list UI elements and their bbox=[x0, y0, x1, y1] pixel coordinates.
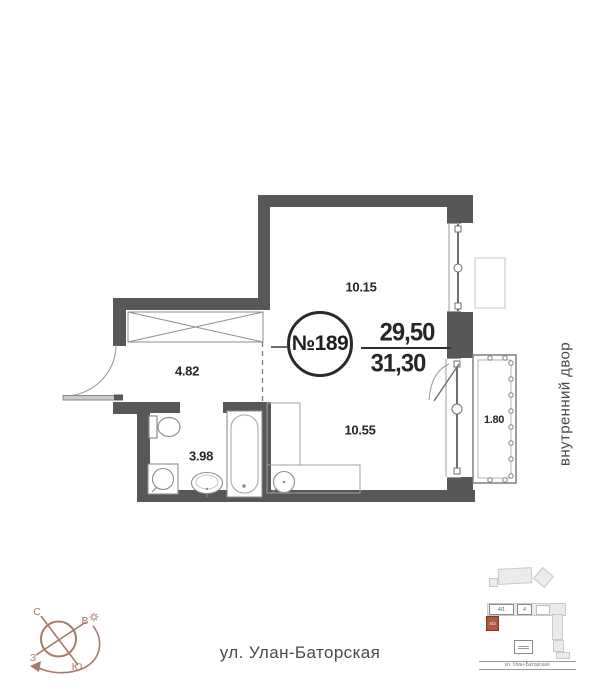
bathroom-sink bbox=[192, 473, 223, 498]
mini-map-street-label: ул. Улан-Баторская bbox=[504, 662, 549, 668]
balcony-door-window bbox=[429, 359, 462, 478]
wardrobe bbox=[128, 312, 263, 342]
compass-rose: С В З Ю bbox=[30, 606, 100, 673]
washing-machine bbox=[148, 464, 178, 494]
mini-map-building-4-label: 4 bbox=[523, 607, 526, 613]
courtyard-label: внутренний двор bbox=[557, 342, 574, 466]
mini-map-highlighted-label: 4/3 bbox=[489, 621, 495, 626]
compass-east-label: В bbox=[81, 615, 88, 627]
bathtub bbox=[227, 411, 262, 497]
toilet bbox=[149, 416, 180, 438]
entrance-door bbox=[63, 345, 123, 401]
mini-map-building bbox=[498, 567, 533, 585]
full-area-value: 31,30 bbox=[371, 350, 426, 379]
mini-map-highlighted-building: 4/3 bbox=[486, 616, 499, 631]
mini-map-text-line bbox=[518, 648, 529, 649]
apartment-number: №189 bbox=[292, 332, 348, 356]
mini-map-text-line bbox=[518, 646, 529, 647]
mini-map-building bbox=[489, 578, 498, 587]
mini-map-building-4-1: 4/1 bbox=[489, 604, 514, 615]
mini-map-building bbox=[553, 640, 564, 652]
compass-south-label: Ю bbox=[72, 661, 83, 673]
street-label: ул. Улан-Баторская bbox=[220, 643, 381, 663]
window-upper bbox=[447, 224, 462, 312]
compass-north-label: С bbox=[33, 606, 41, 618]
floor-plan-page: С В З Ю 10.15 4.82 3.98 10.55 1.80 №189 … bbox=[0, 0, 600, 700]
kitchen-sink bbox=[271, 472, 295, 495]
neighbour-balcony-outline bbox=[475, 258, 505, 308]
area-label-balcony: 1.80 bbox=[484, 414, 504, 426]
mini-map-building bbox=[556, 652, 570, 659]
area-label-hallway: 4.82 bbox=[175, 364, 199, 379]
apartment-number-badge: №189 bbox=[287, 311, 353, 377]
mini-map-building-4: 4 bbox=[517, 604, 532, 615]
mini-map-street-line bbox=[479, 669, 576, 670]
area-label-bathroom: 3.98 bbox=[189, 449, 213, 464]
mini-map-building bbox=[552, 614, 563, 640]
area-label-lower-room: 10.55 bbox=[344, 423, 375, 438]
mini-map-info-block bbox=[514, 640, 533, 654]
total-area-value: 29,50 bbox=[380, 319, 435, 348]
compass-west-label: З bbox=[30, 652, 36, 664]
mini-map-building-4-1-label: 4/1 bbox=[498, 607, 505, 613]
area-label-upper-room: 10.15 bbox=[345, 280, 376, 295]
mini-map-building-unlabeled bbox=[536, 605, 550, 615]
